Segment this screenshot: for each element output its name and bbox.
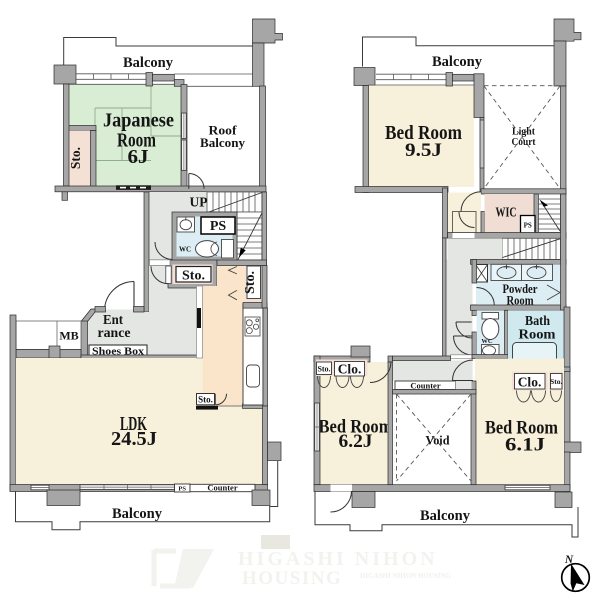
svg-text:Clo.: Clo. <box>518 375 542 390</box>
svg-text:Balcony: Balcony <box>420 508 470 524</box>
svg-text:Balcony: Balcony <box>432 54 482 70</box>
svg-text:rance: rance <box>98 325 131 340</box>
svg-text:HOUSING: HOUSING <box>242 568 342 589</box>
svg-text:Room: Room <box>519 327 557 342</box>
svg-text:6J: 6J <box>128 146 149 168</box>
svg-text:PS: PS <box>178 486 186 493</box>
svg-text:6.2J: 6.2J <box>339 431 373 452</box>
svg-text:Clo.: Clo. <box>338 362 362 377</box>
svg-text:Balcony: Balcony <box>123 55 173 71</box>
svg-text:9.5J: 9.5J <box>405 140 442 161</box>
svg-text:Sto.: Sto. <box>68 147 83 169</box>
svg-text:Sto.: Sto. <box>198 395 213 405</box>
svg-text:Sto.: Sto. <box>243 271 258 294</box>
svg-text:HIGASHI NIHON: HIGASHI NIHON <box>238 548 438 570</box>
svg-text:PS: PS <box>210 219 227 234</box>
svg-text:Japanese: Japanese <box>103 110 174 132</box>
svg-text:Court: Court <box>512 137 536 148</box>
svg-text:WC: WC <box>179 246 191 254</box>
svg-text:Counter: Counter <box>207 483 237 493</box>
svg-text:24.5J: 24.5J <box>111 428 157 450</box>
svg-text:Counter: Counter <box>410 380 440 390</box>
svg-text:Sto.: Sto. <box>317 365 330 374</box>
svg-text:6.1J: 6.1J <box>505 435 545 456</box>
svg-text:Sto.: Sto. <box>550 377 562 386</box>
svg-text:Void: Void <box>426 433 451 448</box>
svg-text:HIGASHI NIHON HOUSING: HIGASHI NIHON HOUSING <box>360 572 452 580</box>
svg-text:Balcony: Balcony <box>112 506 162 522</box>
svg-text:PS: PS <box>524 222 532 230</box>
svg-text:MB: MB <box>59 329 78 343</box>
svg-text:WC: WC <box>481 338 493 345</box>
svg-text:WIC: WIC <box>496 206 517 221</box>
svg-text:UP: UP <box>190 195 208 210</box>
svg-text:Light: Light <box>512 127 535 138</box>
svg-text:Sto.: Sto. <box>182 269 205 284</box>
svg-text:Balcony: Balcony <box>200 136 246 150</box>
